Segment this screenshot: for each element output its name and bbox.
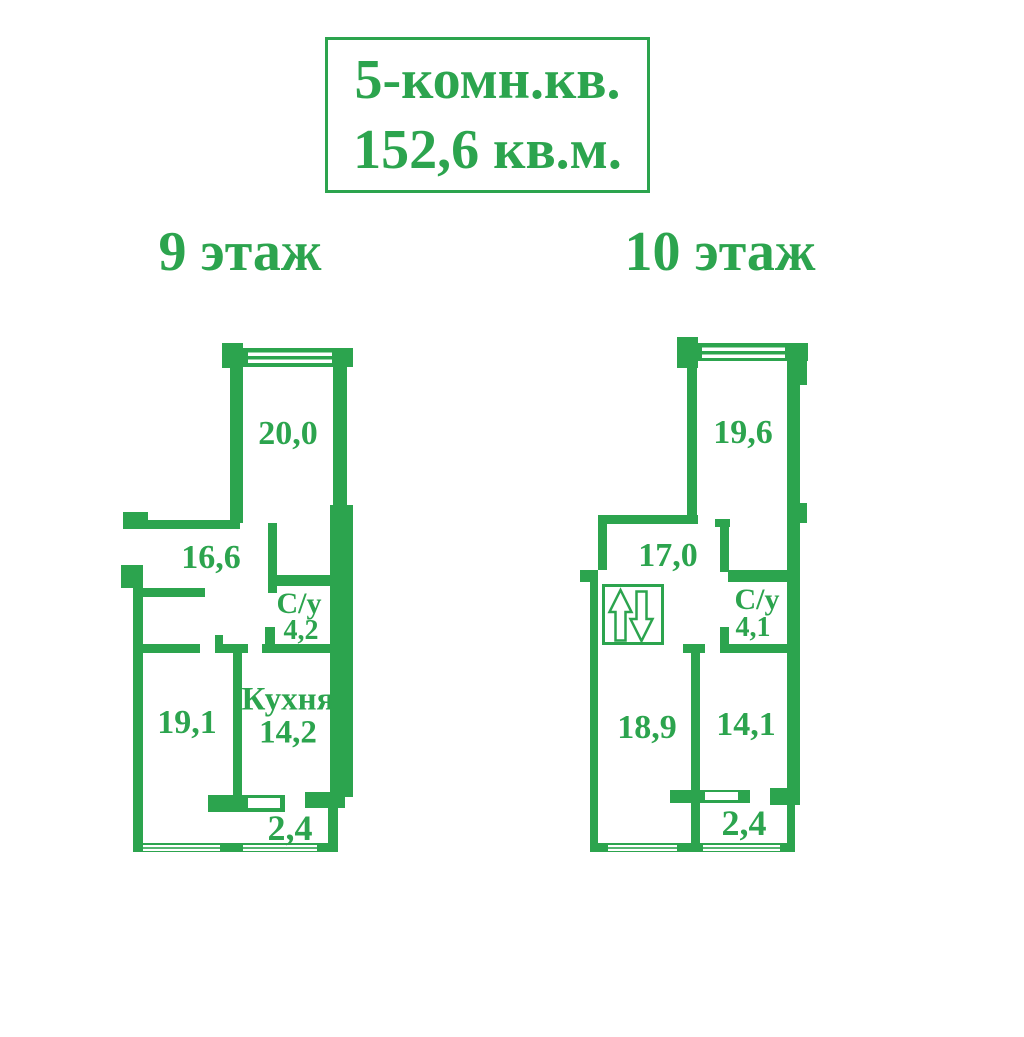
floor10-balcony-area: 2,4 [722,805,767,841]
floor-10-heading: 10 этаж [625,224,816,280]
title-line-1: 5-комн.кв. [354,45,620,115]
floor9-room-20-area: 20,0 [258,417,318,451]
floor-plan-9-drawing [110,330,370,865]
window-icon [248,360,332,364]
floor9-kitchen-name: Кухня [242,684,335,717]
floor10-bathroom-area: 4,1 [736,614,771,642]
window-icon [702,348,785,352]
balcony-door-window-icon [705,792,738,800]
floor10-hall-area: 17,0 [638,539,698,573]
window-icon [702,355,785,359]
floor9-bathroom-area: 4,2 [284,617,319,645]
balcony-door-window-icon [248,798,280,808]
floor9-balcony-area: 2,4 [268,810,313,846]
floor9-kitchen-area: 14,2 [259,717,317,750]
floor-9-heading: 9 этаж [159,224,322,280]
floor10-room-19-area: 19,6 [713,416,773,450]
title-box: 5-комн.кв. 152,6 кв.м. [325,37,650,193]
floor9-room-19-area: 19,1 [157,706,217,740]
window-icon [143,845,220,847]
window-icon [243,849,317,851]
title-line-2: 152,6 кв.м. [353,115,622,185]
floor10-bathroom-name: С/у [735,585,780,615]
window-icon [608,845,677,847]
window-icon [248,353,332,357]
window-icon [703,845,780,847]
floor10-room-14-area: 14,1 [716,708,776,742]
window-icon [703,849,780,851]
floor9-hall-area: 16,6 [181,541,241,575]
stairs-up-down-icon [604,586,663,644]
window-icon [143,849,220,851]
window-icon [608,849,677,851]
floor10-room-18-area: 18,9 [617,711,677,745]
